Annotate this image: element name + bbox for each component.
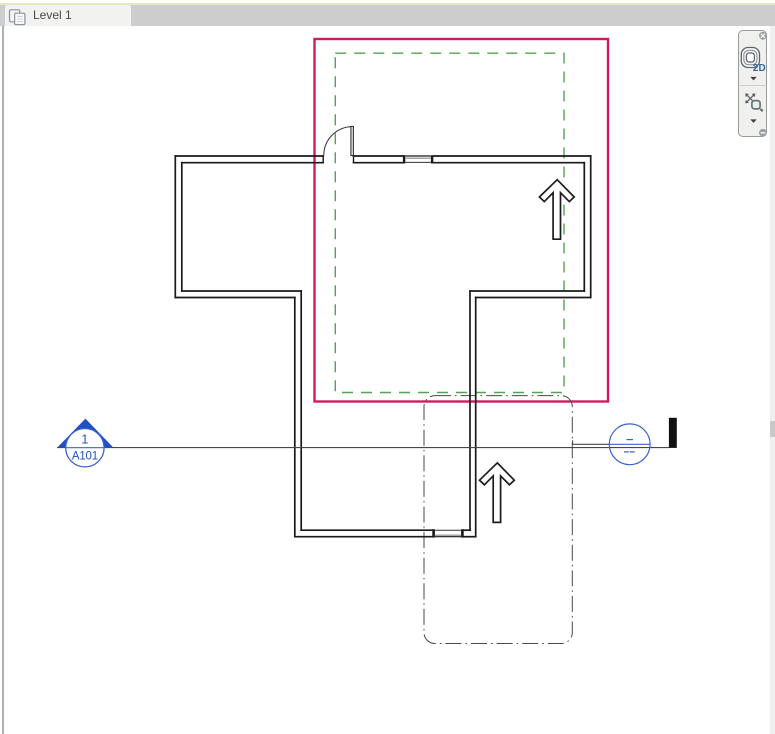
svg-text:1: 1 (81, 433, 88, 447)
svg-text:A101: A101 (72, 451, 98, 463)
svg-text:2D: 2D (753, 63, 766, 74)
